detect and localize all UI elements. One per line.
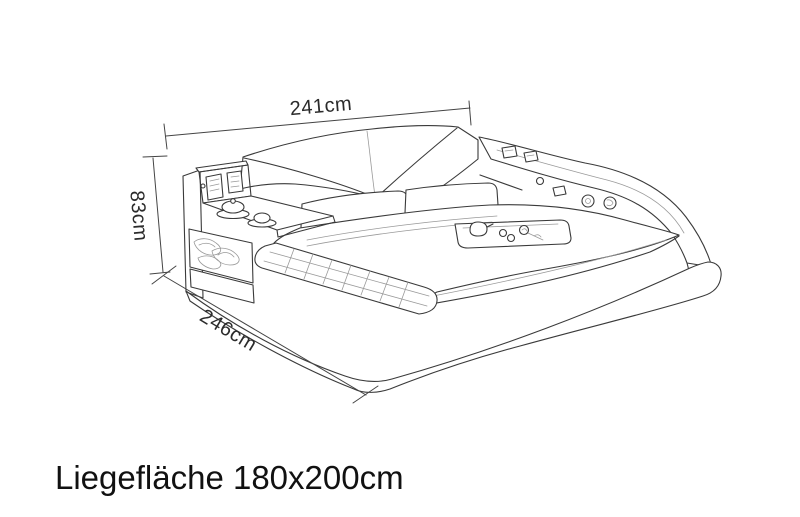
rose <box>520 226 529 235</box>
lying-surface-caption: Liegefläche 180x200cm <box>55 459 404 497</box>
cup <box>508 235 515 242</box>
control-screen <box>206 174 223 200</box>
cup <box>500 230 507 237</box>
teapot <box>470 222 487 236</box>
control-screen <box>227 171 243 193</box>
cup <box>254 213 270 223</box>
height-dimension-label: 83cm <box>124 190 151 243</box>
bed-line-art <box>0 0 800 517</box>
breakfast-tray <box>455 220 571 248</box>
product-dimension-diagram: 241cm 83cm 246cm Liegefläche 180x200cm <box>0 0 800 517</box>
